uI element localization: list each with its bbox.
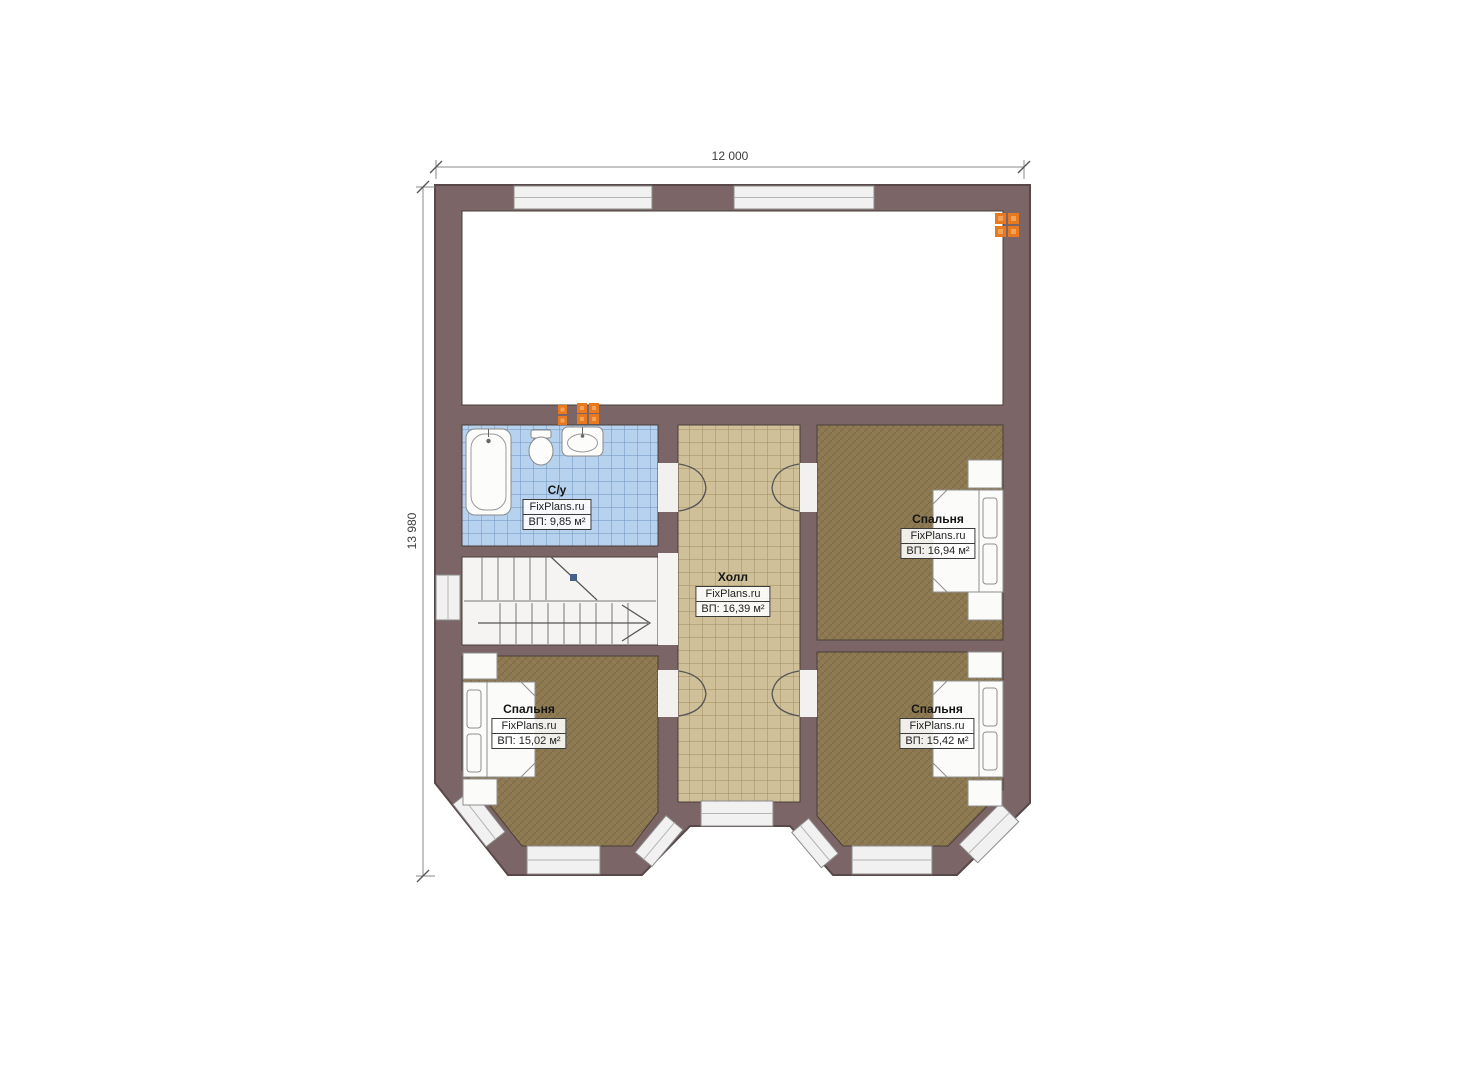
bedroom-bottom-left-brand: FixPlans.ru xyxy=(492,719,565,734)
bathroom-door-opening xyxy=(658,463,678,512)
window-bay-left-bottom xyxy=(527,846,600,874)
bathtub-icon xyxy=(466,429,511,515)
dimension-top-label: 12 000 xyxy=(712,149,749,163)
bedroom-bottom-left-name: Спальня xyxy=(503,702,555,716)
window-bay-right-bottom xyxy=(852,846,932,874)
bathroom-info-box: FixPlans.ru ВП: 9,85 м² xyxy=(522,499,591,530)
room-label-bedroom-top-right: Спальня FixPlans.ru ВП: 16,94 м² xyxy=(900,512,975,559)
floor-plan-page: 12 000 13 980 С/у FixPlans.ru ВП: 9,85 м… xyxy=(0,0,1474,1080)
bedroom-top-right-info-box: FixPlans.ru ВП: 16,94 м² xyxy=(900,528,975,559)
room-label-hall: Холл FixPlans.ru ВП: 16,39 м² xyxy=(695,570,770,617)
flue-bathroom-icon xyxy=(558,403,599,425)
hall-info-box: FixPlans.ru ВП: 16,39 м² xyxy=(695,586,770,617)
bedroom-bottom-left-door-opening xyxy=(658,670,678,717)
stair-hall-passage xyxy=(658,553,678,645)
bedroom-top-right-area: ВП: 16,94 м² xyxy=(901,544,974,558)
attic-area xyxy=(462,211,1003,405)
bedroom-bottom-right-area: ВП: 15,42 м² xyxy=(900,734,973,748)
window-top-right xyxy=(734,186,874,209)
floor-plan-drawing: 12 000 13 980 xyxy=(0,0,1474,1080)
bedroom-bottom-right-name: Спальня xyxy=(911,702,963,716)
bedroom-top-right-name: Спальня xyxy=(912,512,964,526)
window-left-stairs xyxy=(436,575,460,620)
window-hall-balcony xyxy=(701,801,773,826)
sink-icon xyxy=(562,427,603,456)
hall-brand: FixPlans.ru xyxy=(696,587,769,602)
hall-name: Холл xyxy=(718,570,748,584)
dimension-left-label: 13 980 xyxy=(405,512,419,549)
bedroom-bottom-left-area: ВП: 15,02 м² xyxy=(492,734,565,748)
bedroom-bottom-left-info-box: FixPlans.ru ВП: 15,02 м² xyxy=(491,718,566,749)
bedroom-top-right-brand: FixPlans.ru xyxy=(901,529,974,544)
hall-area: ВП: 16,39 м² xyxy=(696,602,769,616)
bedroom-bottom-right-info-box: FixPlans.ru ВП: 15,42 м² xyxy=(899,718,974,749)
room-label-bedroom-bottom-right: Спальня FixPlans.ru ВП: 15,42 м² xyxy=(899,702,974,749)
bathroom-name: С/у xyxy=(548,483,567,497)
bedroom-bottom-right-door-opening xyxy=(800,670,817,717)
bathroom-brand: FixPlans.ru xyxy=(523,500,590,515)
room-label-bathroom: С/у FixPlans.ru ВП: 9,85 м² xyxy=(522,483,591,530)
bedroom-top-right-door-opening xyxy=(800,463,817,512)
toilet-icon xyxy=(529,430,553,465)
bedroom-bottom-right-brand: FixPlans.ru xyxy=(900,719,973,734)
bathroom-area: ВП: 9,85 м² xyxy=(523,515,590,529)
room-label-bedroom-bottom-left: Спальня FixPlans.ru ВП: 15,02 м² xyxy=(491,702,566,749)
window-top-left xyxy=(514,186,652,209)
